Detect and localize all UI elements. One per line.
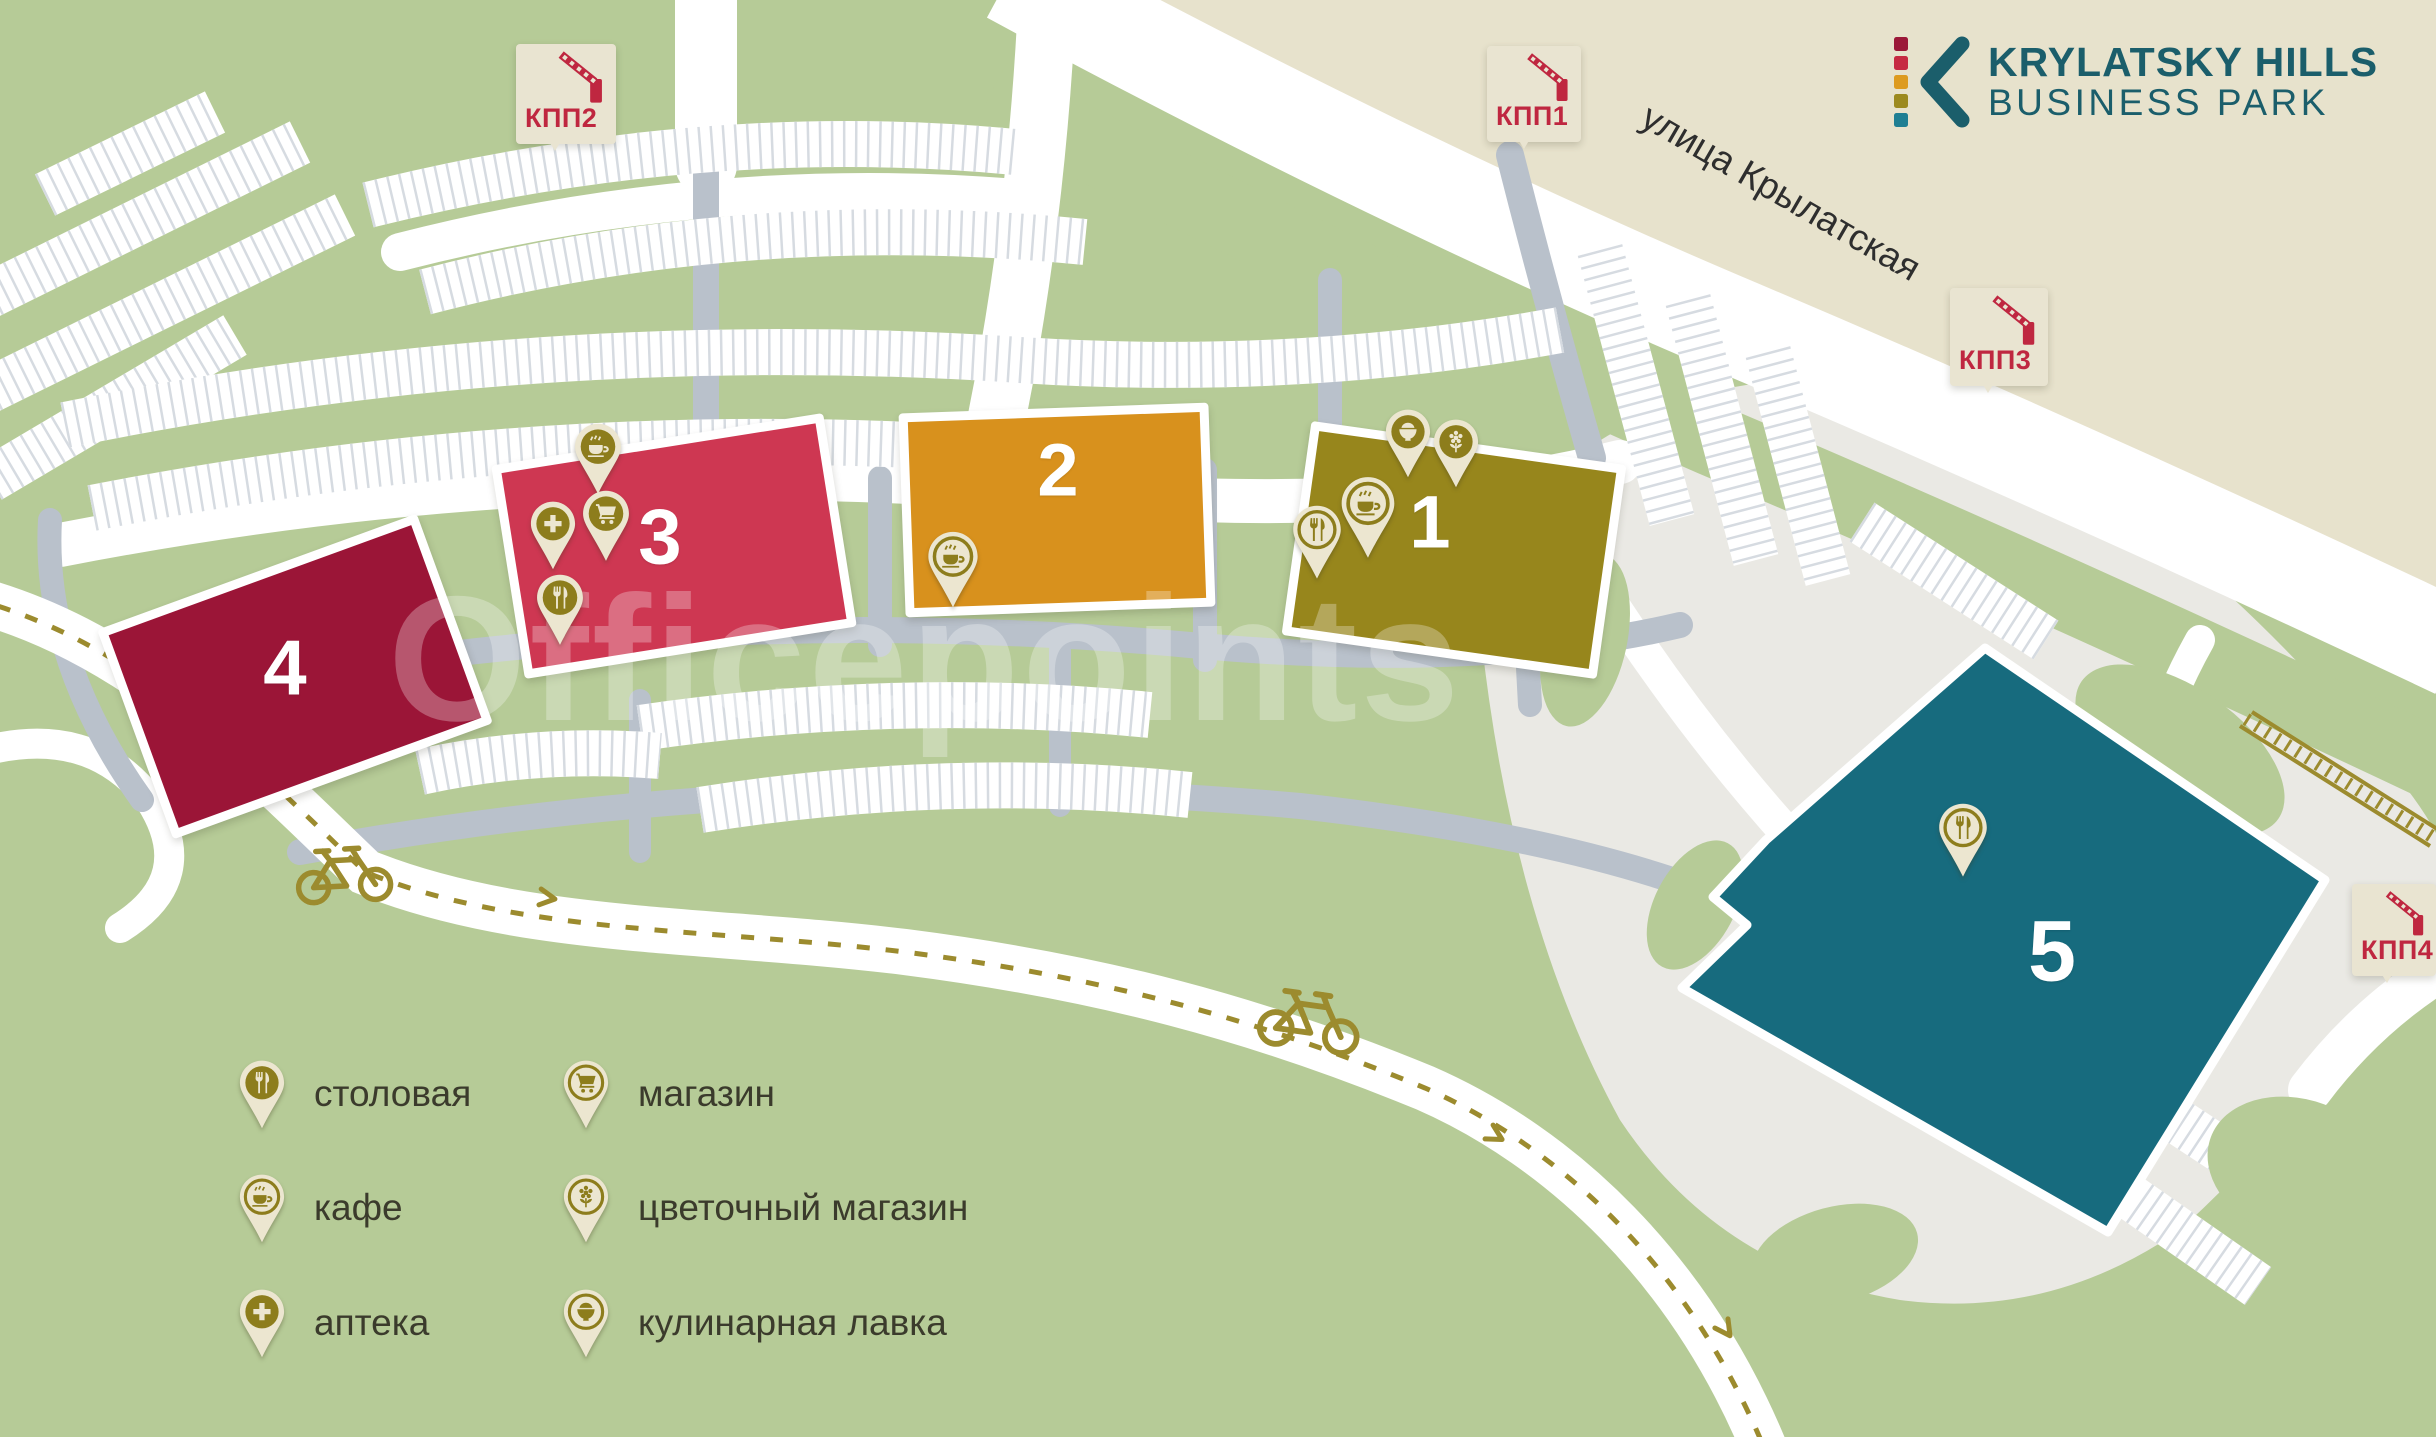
checkpoint-label: КПП1	[1496, 101, 1568, 132]
legend-item-pharmacy: аптека	[236, 1287, 429, 1360]
legend-item-canteen: столовая	[236, 1058, 471, 1131]
building-2-number: 2	[1037, 428, 1078, 513]
logo-chevron-icon	[1916, 36, 1974, 128]
legend-item-flower-shop: цветочный магазин	[560, 1172, 968, 1245]
bicycle-icon	[293, 835, 397, 913]
barrier-gate-icon	[553, 50, 611, 108]
building-5-number: 5	[2028, 903, 2076, 1002]
shop-pin	[560, 1058, 612, 1131]
bicycle-icon	[1253, 975, 1369, 1066]
canteen-pin[interactable]	[1935, 801, 1991, 879]
canteen-pin[interactable]	[1289, 503, 1345, 581]
building-1-number: 1	[1409, 480, 1450, 565]
canteen-pin	[236, 1058, 288, 1131]
legend-label: цветочный магазин	[638, 1187, 968, 1229]
legend-item-shop: магазин	[560, 1058, 775, 1131]
logo-squares-icon	[1894, 37, 1908, 127]
checkpoint-kpp3[interactable]: КПП3	[1950, 288, 2048, 386]
barrier-gate-icon	[1987, 294, 2043, 350]
canteen-pin[interactable]	[533, 572, 587, 648]
legend-label: аптека	[314, 1302, 429, 1344]
checkpoint-label: КПП2	[525, 103, 597, 134]
pharmacy-pin[interactable]	[527, 499, 579, 572]
site-map: 1 2 3 4 5 КПП2 КПП1 КПП3	[0, 0, 2436, 1437]
checkpoint-label: КПП4	[2361, 935, 2433, 966]
logo-subtitle: BUSINESS PARK	[1988, 84, 2378, 123]
logo-square	[1894, 75, 1908, 89]
checkpoint-kpp2[interactable]: КПП2	[516, 44, 616, 144]
logo-square	[1894, 56, 1908, 70]
legend-label: кафе	[314, 1187, 403, 1229]
culinary-pin[interactable]	[1382, 407, 1434, 480]
logo-square	[1894, 113, 1908, 127]
legend-item-cafe: кафе	[236, 1172, 403, 1245]
logo-square	[1894, 37, 1908, 51]
checkpoint-kpp1[interactable]: КПП1	[1487, 46, 1581, 142]
building-4-number: 4	[263, 623, 306, 714]
pharmacy-pin	[236, 1287, 288, 1360]
logo-square	[1894, 94, 1908, 108]
checkpoint-kpp4[interactable]: КПП4	[2352, 884, 2436, 976]
cafe-pin	[236, 1172, 288, 1245]
flower-pin	[560, 1172, 612, 1245]
legend-label: столовая	[314, 1073, 471, 1115]
shop-pin[interactable]	[579, 488, 633, 564]
flower-pin[interactable]	[1430, 417, 1482, 490]
cafe-pin[interactable]	[924, 529, 982, 610]
logo-title: KRYLATSKY HILLS	[1988, 41, 2378, 84]
culinary-pin	[560, 1287, 612, 1360]
building-3-number: 3	[638, 492, 681, 583]
cafe-pin[interactable]	[1337, 474, 1399, 561]
cafe-pin[interactable]	[571, 421, 625, 497]
brand-logo: KRYLATSKY HILLS BUSINESS PARK	[1894, 36, 2378, 128]
checkpoint-label: КПП3	[1959, 345, 2031, 376]
barrier-gate-icon	[2381, 890, 2431, 940]
barrier-gate-icon	[1522, 52, 1576, 106]
legend-label: кулинарная лавка	[638, 1302, 947, 1344]
legend-label: магазин	[638, 1073, 775, 1115]
legend-item-culinary-shop: кулинарная лавка	[560, 1287, 947, 1360]
